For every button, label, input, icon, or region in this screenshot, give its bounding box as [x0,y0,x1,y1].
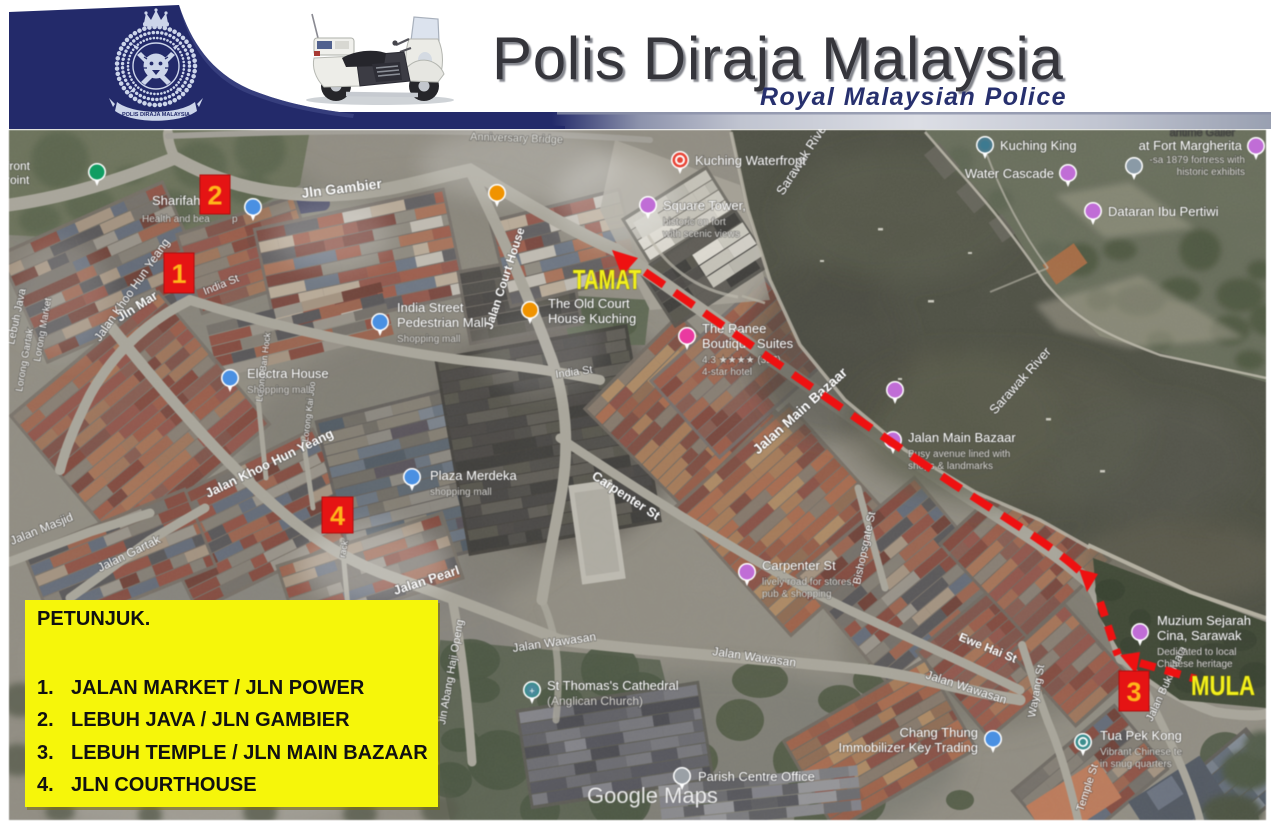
svg-text:Tua Pek Kong: Tua Pek Kong [1100,728,1182,743]
svg-text:The Old Court: The Old Court [548,296,630,311]
svg-text:rfront: rfront [9,159,31,173]
svg-text:at Fort Margherita: at Fort Margherita [1139,138,1243,153]
svg-text:Chang Thung: Chang Thung [899,725,978,740]
svg-text:historic on fort: historic on fort [663,217,726,228]
svg-text:historic exhibits: historic exhibits [1177,167,1245,178]
svg-text:4: 4 [330,501,345,531]
svg-text:Dataran Ibu Pertiwi: Dataran Ibu Pertiwi [1108,204,1219,219]
svg-text:Sharifah: Sharifah [152,193,200,208]
svg-text:India Street: India Street [397,300,464,315]
svg-text:Electra House: Electra House [247,366,329,381]
svg-text:TAMAT: TAMAT [573,264,641,295]
svg-text:Point: Point [9,173,30,187]
svg-text:4-star hotel: 4-star hotel [702,367,752,378]
svg-text:(Anglican Church): (Anglican Church) [547,694,643,708]
svg-text:House Kuching: House Kuching [548,311,636,326]
svg-text:Parish Centre Office: Parish Centre Office [698,769,815,784]
svg-text:Shopping mall: Shopping mall [397,334,460,345]
svg-text:in snug quarters: in snug quarters [1100,759,1172,770]
svg-text:Jalan Main Bazaar: Jalan Main Bazaar [908,430,1016,445]
svg-text:MULA: MULA [1191,670,1255,701]
svg-text:Kuching Waterfront: Kuching Waterfront [695,153,806,168]
svg-text:shopping mall: shopping mall [430,487,492,498]
svg-text:Shopping mall: Shopping mall [247,385,310,396]
svg-text:Health and bea: Health and bea [142,214,210,225]
svg-text:Busy avenue lined with: Busy avenue lined with [908,449,1010,460]
svg-text:Muzium Sejarah: Muzium Sejarah [1157,613,1251,628]
svg-text:Plaza Merdeka: Plaza Merdeka [430,468,517,483]
svg-text:Immobilizer Key Trading: Immobilizer Key Trading [839,740,978,755]
svg-text:Carpenter St: Carpenter St [762,558,836,573]
svg-text:Vibrant Chinese te: Vibrant Chinese te [1100,747,1183,758]
svg-text:1: 1 [171,259,186,289]
svg-text:lively road for stores,: lively road for stores, [762,577,854,588]
svg-text:Kuching King: Kuching King [1000,138,1077,153]
svg-text:+: + [529,686,534,696]
svg-text:-sa 1879 fortress with: -sa 1879 fortress with [1149,155,1245,166]
svg-text:Cina, Sarawak: Cina, Sarawak [1157,628,1242,643]
svg-text:Square Tower,: Square Tower, [663,198,746,213]
svg-text:Pedestrian Mall: Pedestrian Mall [397,315,487,330]
svg-text:St Thomas's Cathedral: St Thomas's Cathedral [547,678,679,693]
svg-text:POLIS DIRAJA MALAYSIA: POLIS DIRAJA MALAYSIA [122,112,190,118]
svg-text:with scenic views: with scenic views [662,229,740,240]
svg-text:2: 2 [207,181,222,211]
svg-text:pub & shopping: pub & shopping [762,589,832,600]
svg-text:p: p [232,214,238,225]
svg-text:3: 3 [1126,677,1141,707]
svg-text:Dedicated to local: Dedicated to local [1157,647,1237,658]
svg-text:Google Maps: Google Maps [587,783,718,808]
svg-text:Water Cascade: Water Cascade [965,166,1054,181]
